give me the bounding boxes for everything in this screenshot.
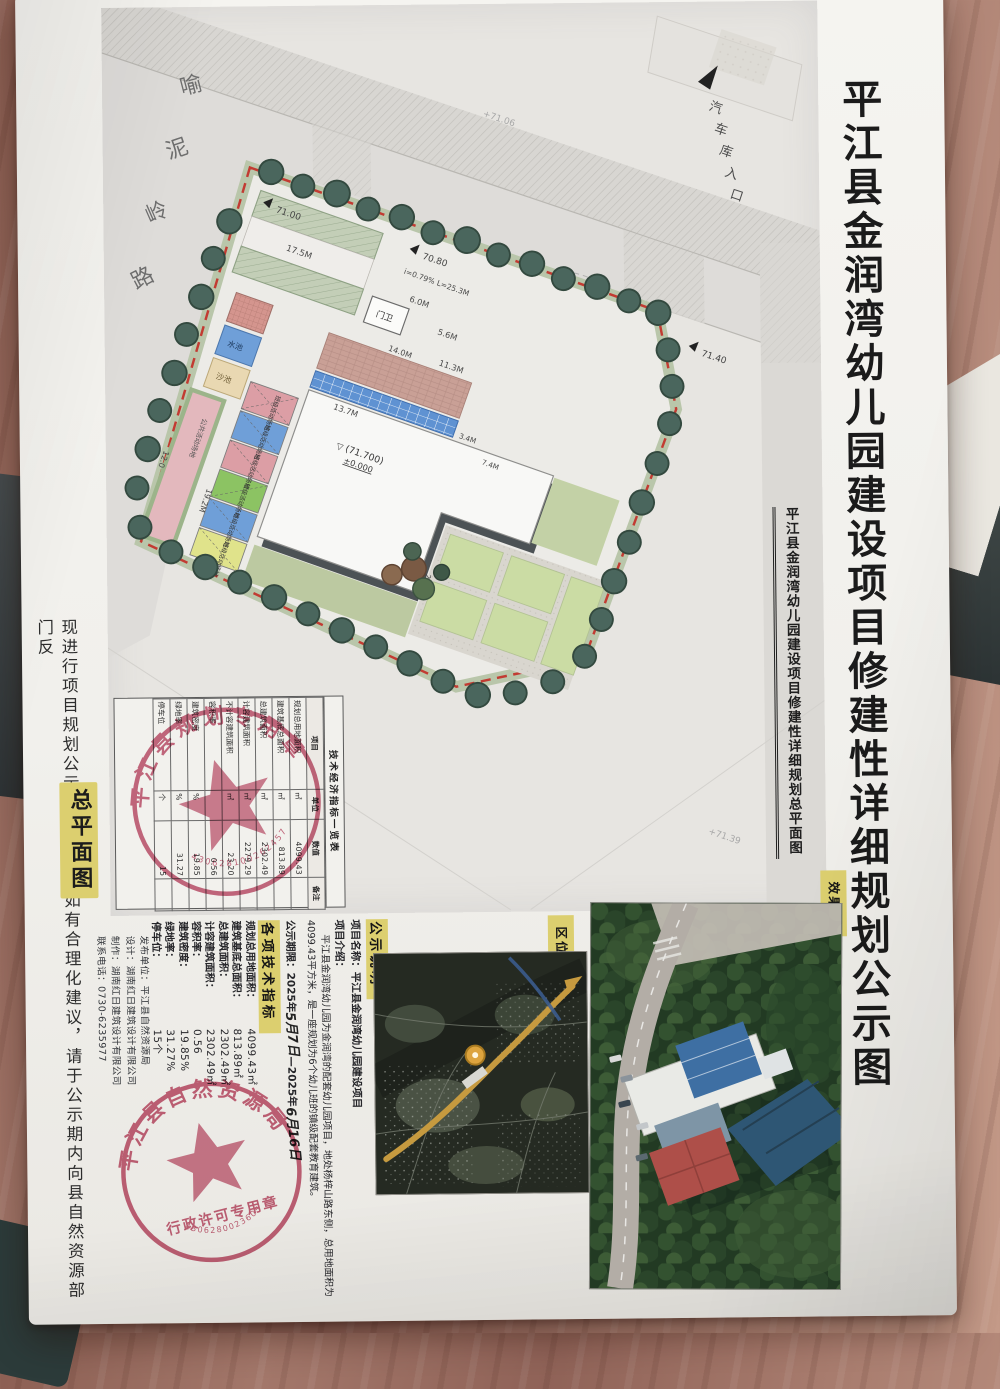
svg-text:+71.39: +71.39 (707, 827, 742, 847)
plan-subtitle: 平江县金润湾幼儿园建设项目修建性详细规划总平面图 (772, 507, 804, 859)
svg-text:430628100262457: 430628100262457 (187, 824, 296, 881)
tech-heading: 各项技术指标 (257, 920, 280, 1033)
handwritten-date-start: 5月7日 (281, 1011, 304, 1057)
side-note-text: 现进行项目规划公示，各界人士如有合理化建议，请于公示期内向县自然资源部门反 (32, 618, 87, 1318)
stamp-star-icon (170, 747, 284, 856)
project-name-value: 平江县金润湾幼儿园建设项目 (349, 972, 362, 1109)
svg-text:汽: 汽 (707, 99, 724, 117)
period-label: 公示期限： (283, 920, 296, 973)
location-map (373, 951, 590, 1195)
svg-text:车: 车 (712, 120, 729, 139)
project-name-label: 项目名称： (349, 919, 362, 972)
siteplan-section-label: 总平面图 (59, 782, 98, 898)
planning-notice-paper: 平江县金润湾幼儿园建设项目修建性详细规划公示图 现进行项目规划公示，各界人士如有… (15, 0, 957, 1325)
aerial-rendering (589, 902, 842, 1290)
intro-text: 平江县金润湾幼儿园为金润湾的配套幼儿园项目，地处杨梓山路东侧，总用地面积为409… (303, 920, 335, 1312)
page-title: 平江县金润湾幼儿园建设项目修建性详细规划公示图 (838, 78, 890, 1248)
svg-text:入: 入 (723, 165, 740, 183)
svg-text:库: 库 (717, 142, 734, 161)
stamp-star-icon (159, 1113, 256, 1206)
svg-text:71.40: 71.40 (700, 349, 728, 367)
photo-of-planning-notice-poster: { "colors":{"highlight_yellow":"#dccf6f"… (0, 0, 1000, 1333)
